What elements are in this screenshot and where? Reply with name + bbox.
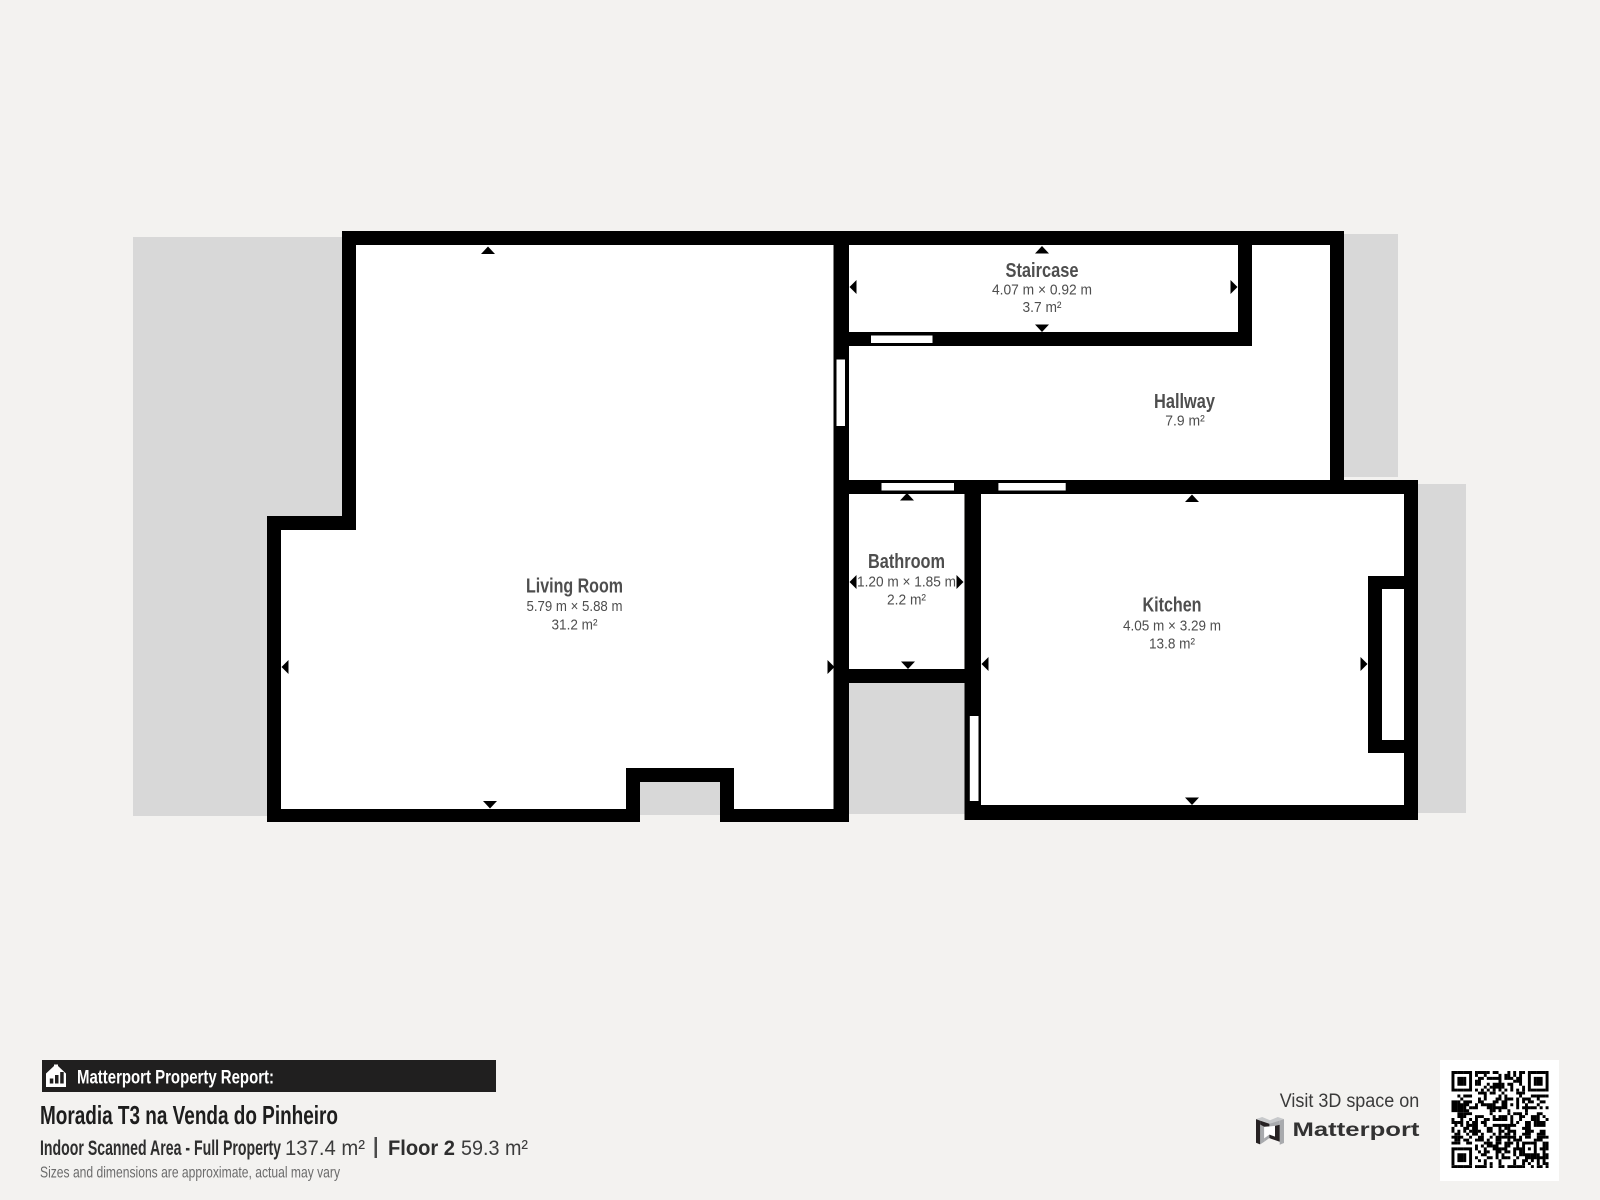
svg-text:Kitchen: Kitchen [1143, 595, 1202, 617]
svg-text:Bathroom: Bathroom [868, 551, 945, 573]
svg-text:137.4 m²: 137.4 m² [285, 1137, 365, 1160]
svg-text:Staircase: Staircase [1006, 260, 1079, 282]
svg-text:5.79 m × 5.88 m: 5.79 m × 5.88 m [527, 598, 623, 615]
svg-text:Living Room: Living Room [526, 576, 623, 598]
svg-text:Floor 2: Floor 2 [388, 1137, 455, 1160]
svg-text:13.8 m²: 13.8 m² [1149, 636, 1195, 653]
svg-text:Moradia T3 na Venda do Pinheir: Moradia T3 na Venda do Pinheiro [40, 1100, 338, 1130]
svg-text:3.7 m²: 3.7 m² [1023, 299, 1062, 316]
svg-text:Matterport: Matterport [1293, 1119, 1421, 1141]
svg-text:Matterport Property Report:: Matterport Property Report: [77, 1068, 274, 1089]
svg-text:4.05 m × 3.29 m: 4.05 m × 3.29 m [1123, 618, 1221, 635]
svg-text:7.9 m²: 7.9 m² [1165, 413, 1205, 430]
svg-text:2.2 m²: 2.2 m² [887, 592, 926, 609]
svg-text:Indoor Scanned Area - Full Pro: Indoor Scanned Area - Full Property [40, 1137, 281, 1160]
svg-text:Hallway: Hallway [1154, 391, 1216, 413]
svg-text:4.07 m × 0.92 m: 4.07 m × 0.92 m [992, 282, 1092, 299]
svg-text:1.20 m × 1.85 m: 1.20 m × 1.85 m [857, 574, 956, 591]
svg-text:Sizes and dimensions are appro: Sizes and dimensions are approximate, ac… [40, 1165, 340, 1182]
svg-text:59.3 m²: 59.3 m² [461, 1137, 528, 1160]
svg-text:Visit 3D space on: Visit 3D space on [1280, 1091, 1420, 1112]
svg-text:31.2 m²: 31.2 m² [552, 617, 598, 634]
